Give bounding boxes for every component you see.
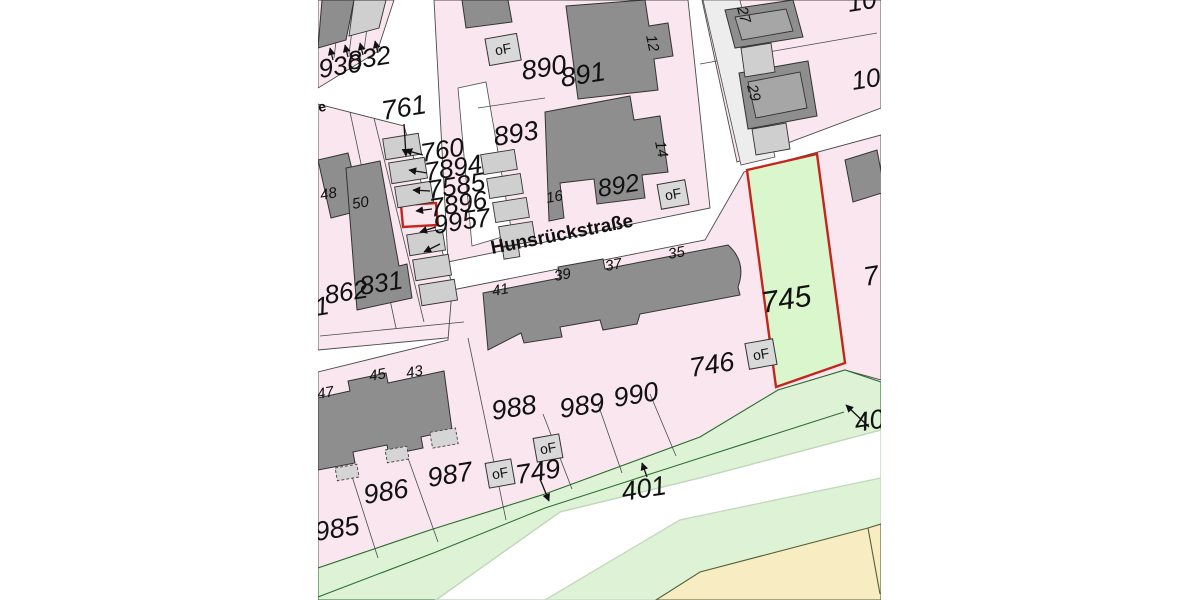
screenshot-canvas: { "map": { "type": "cadastral-parcel-map…	[0, 0, 1200, 600]
of-label: oF	[494, 40, 513, 59]
house-number-14: 14	[651, 139, 671, 159]
house-number-41: 41	[491, 280, 510, 300]
parcel-label-832: 832	[345, 39, 393, 76]
parcel-label-10b: 10	[849, 62, 881, 96]
building-annex-27	[741, 43, 775, 77]
parcel-label-40: 40	[852, 404, 881, 438]
parcel-label-761: 761	[379, 89, 428, 126]
cadastral-map[interactable]: oF oF oF oF oF 930 832 761 760 7894 7585…	[318, 0, 881, 600]
of-label: oF	[752, 345, 771, 364]
of-label: oF	[491, 464, 510, 483]
of-label: oF	[664, 185, 683, 204]
building-annex-29	[752, 123, 790, 155]
